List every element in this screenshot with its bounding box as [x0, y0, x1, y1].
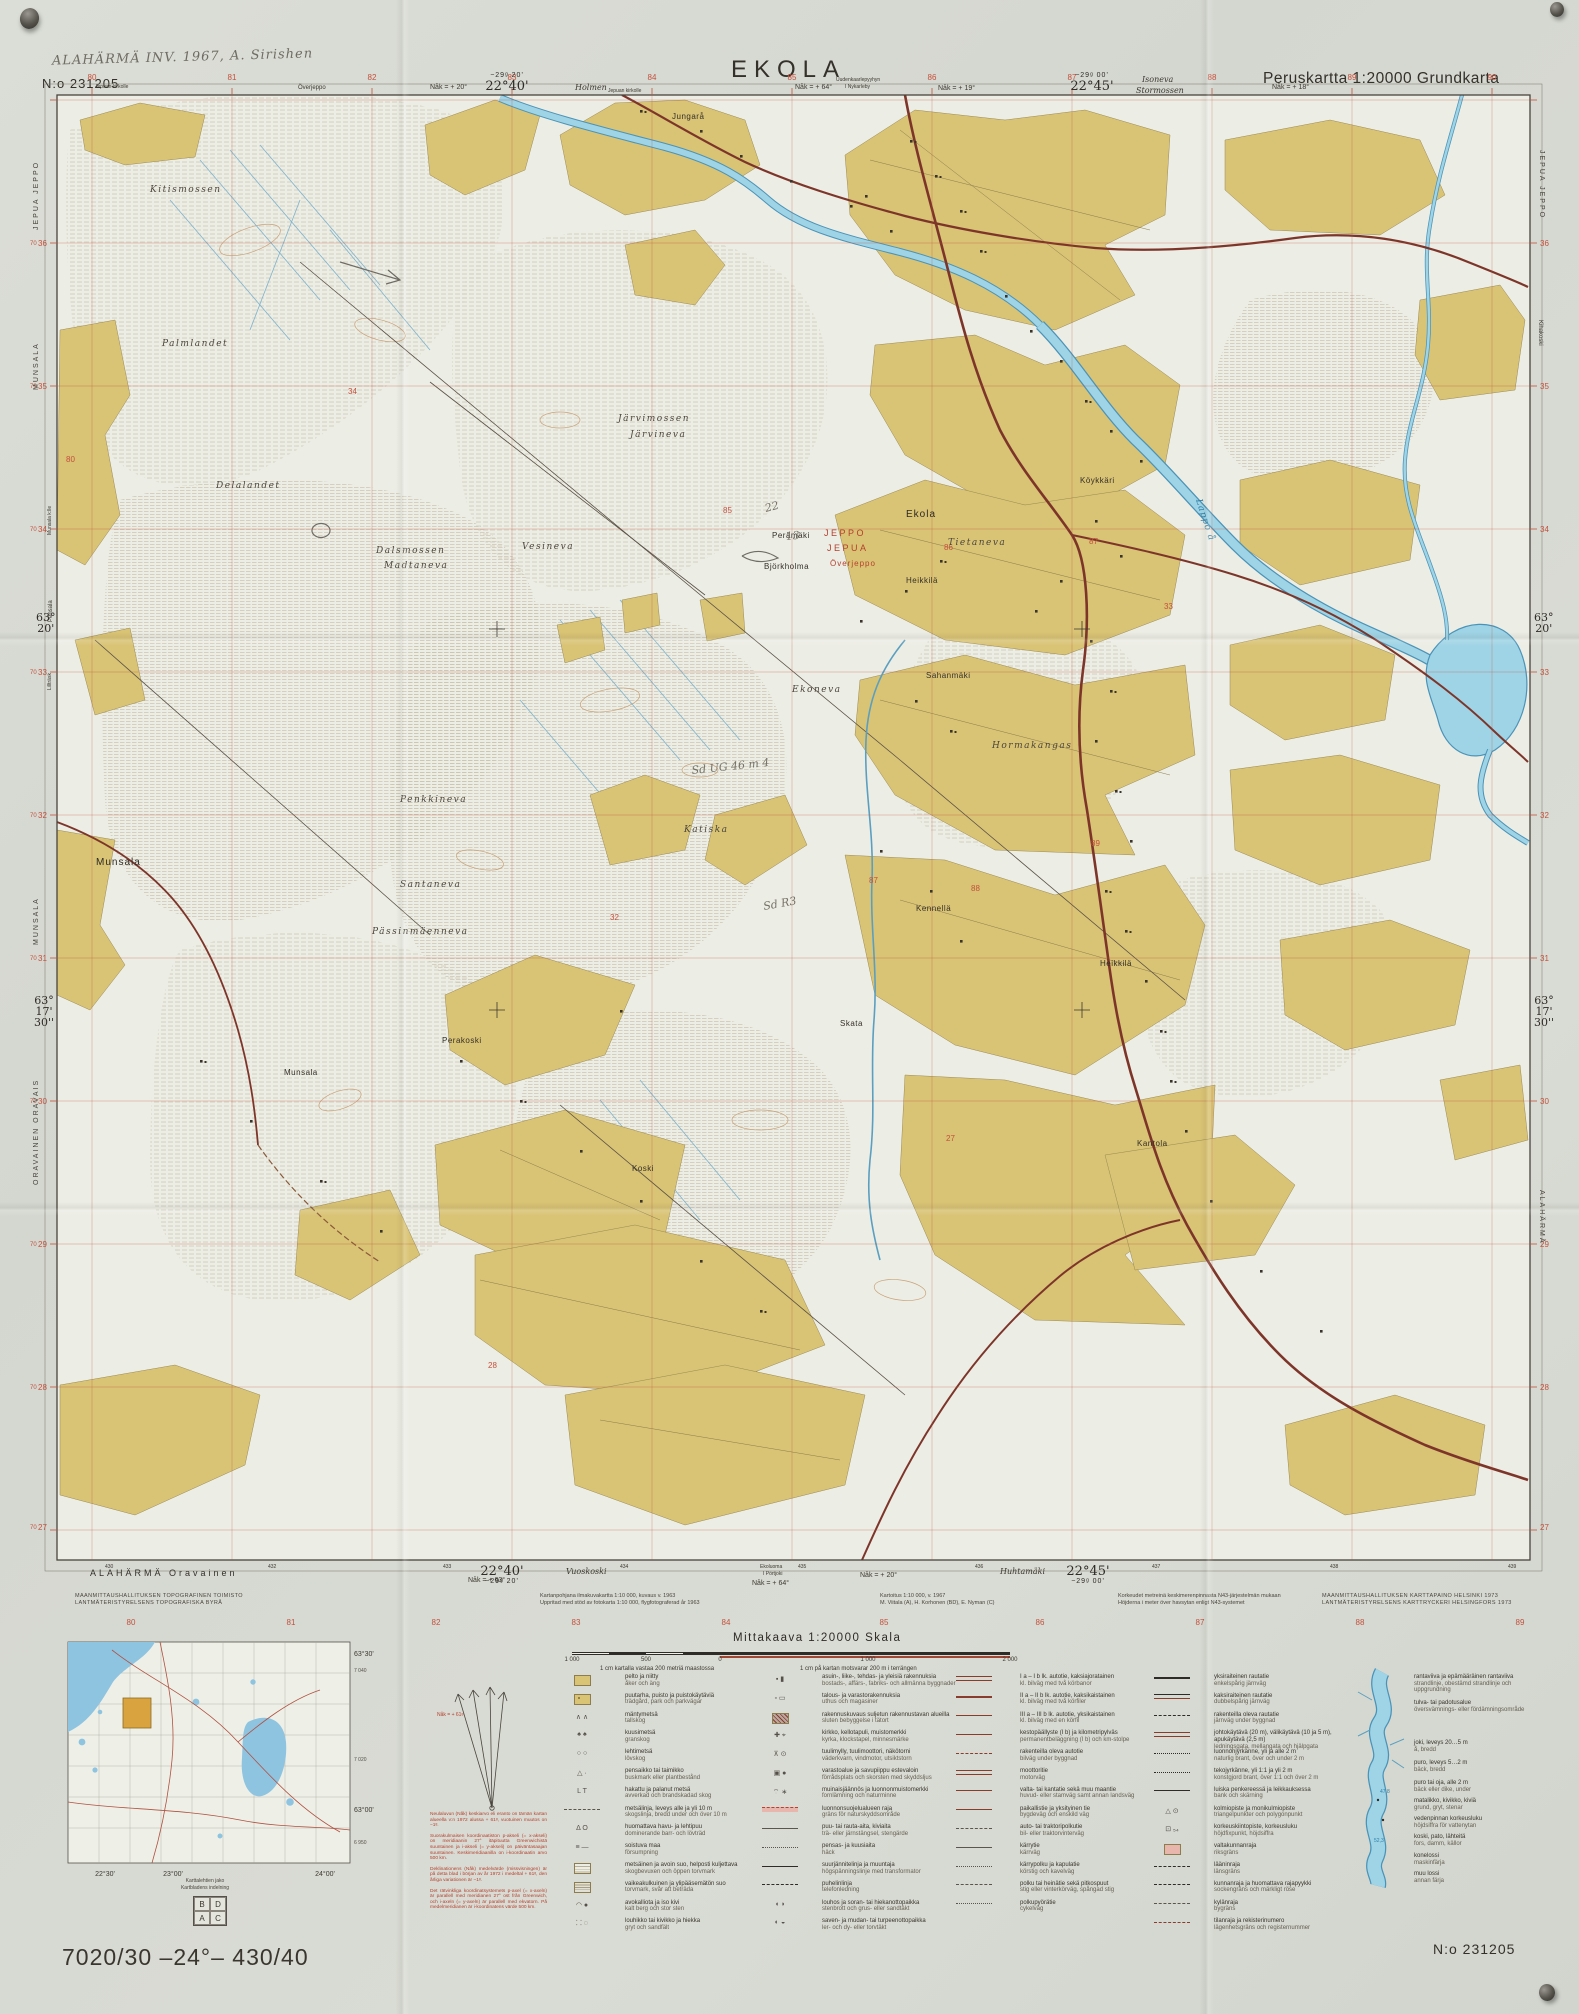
margin-label: Jepuan kirkolle: [95, 84, 128, 90]
margin-label: Isoneva: [1142, 75, 1173, 84]
map-place-label: Dalsmossen: [375, 546, 445, 556]
svg-text:70: 70: [30, 956, 37, 962]
svg-text:80: 80: [88, 73, 97, 82]
legend-water-item: rantaviiva ja epämääräinen rantaviivastr…: [1414, 1674, 1546, 1694]
legend-terrain-item: soistuva maaförsumpning: [625, 1843, 763, 1856]
map-place-label: 13: [785, 529, 800, 543]
sheet-code: 7020/30 –24°– 430/40: [62, 1944, 309, 1971]
svg-text:89: 89: [1348, 73, 1357, 82]
quadrant-a: A: [194, 1911, 210, 1925]
svg-text:70: 70: [30, 1385, 37, 1391]
svg-text:89: 89: [1516, 1618, 1525, 1627]
legend-roads-item: polkupyörätiecykelväg: [1020, 1900, 1170, 1913]
legend-boundaries-symbol: [1150, 1901, 1194, 1908]
legend-boundaries-symbol: [1150, 1882, 1194, 1889]
map-place-label: Pässinmäenneva: [371, 927, 469, 937]
svg-text:80: 80: [127, 1618, 136, 1627]
svg-text:31: 31: [38, 954, 47, 963]
legend-water-illustration: 47,8 52,3: [1358, 1672, 1404, 1886]
latitude-label: 63°20': [36, 612, 56, 634]
map-place-label: Munsala: [96, 857, 141, 868]
legend-buildings-item: puhelinlinjatelefonledning: [822, 1881, 960, 1894]
index-map: 22°30'23°00'24°00'63°30'63°00'7 0407 020…: [68, 1642, 374, 1878]
svg-text:32: 32: [1540, 811, 1549, 820]
legend-roads-symbol: [952, 1769, 996, 1776]
svg-text:29: 29: [38, 1240, 47, 1249]
legend-water-item: vedenpinnan korkeuslukuhöjdsiffra för va…: [1414, 1816, 1546, 1829]
margin-label: ALAHÄRMÄ Oravainen: [90, 1568, 238, 1578]
legend-buildings-item: tuulimylly, tuulimoottori, näkötorniväde…: [822, 1749, 960, 1762]
svg-text:63°30': 63°30': [354, 1650, 374, 1658]
svg-text:33: 33: [1540, 668, 1549, 677]
legend-roads-symbol: [952, 1731, 996, 1738]
legend-terrain-symbol: Δ O: [560, 1825, 604, 1832]
legend-terrain-item: metsäinen ja avoin suo, helposti kuljett…: [625, 1862, 763, 1875]
map-place-label: Palmlandet: [161, 339, 228, 349]
legend-terrain-item: mäntymetsätallskog: [625, 1712, 763, 1725]
map-place-label: Madtaneva: [383, 561, 448, 571]
map-place-label: JEPUA: [827, 543, 869, 553]
legend-buildings-symbol: ⊼ ⊙: [758, 1750, 802, 1758]
legend-terrain-item: puutarha, puisto ja puistokäytäviäträdgå…: [625, 1693, 763, 1706]
legend-buildings-symbol: [758, 1807, 802, 1814]
credit-block: Korkeudet metreinä keskimerenpinnasta N4…: [1118, 1593, 1281, 1607]
margin-label: Överjeppo: [298, 85, 326, 91]
quadrant-c: C: [210, 1911, 226, 1925]
legend-buildings-symbol: ▫ ▭: [758, 1694, 802, 1702]
legend-boundaries-item: kylänrajabygräns: [1214, 1900, 1336, 1913]
legend-buildings-item: talous- ja varastorakennuksiauthus och m…: [822, 1693, 960, 1706]
map-place-label: Köykkäri: [1080, 476, 1115, 485]
legend-terrain-symbol: ⸬ ◌: [560, 1919, 604, 1928]
svg-text:87: 87: [869, 876, 878, 885]
legend-water-item: konelossimaskinfärja: [1414, 1853, 1546, 1866]
legend-roads-symbol: [952, 1844, 996, 1851]
legend-boundaries-item: kolmiopiste ja monikulmiopistetriangelpu…: [1214, 1806, 1336, 1819]
map-place-label: Jungarå: [672, 112, 704, 121]
legend-boundaries-symbol: [1150, 1750, 1194, 1757]
svg-text:32: 32: [38, 811, 47, 820]
svg-text:439: 439: [1508, 1564, 1517, 1570]
legend-buildings-symbol: [758, 1882, 802, 1889]
margin-label: MUNSALA: [33, 342, 40, 390]
margin-label: Lillträsk: [47, 673, 53, 690]
svg-text:27: 27: [1540, 1523, 1549, 1532]
legend-boundaries-item: johtokäytävä (20 m), välikäytävä (10 ja …: [1214, 1730, 1336, 1750]
quadrant-diagram: B D A C: [193, 1896, 227, 1926]
legend-terrain-symbol: ◠ ●: [560, 1901, 604, 1909]
coordinate-label: 22°45'−29ᵍ 00': [1058, 1565, 1118, 1586]
margin-label: Nåk = + 64°: [752, 1580, 789, 1587]
legend-terrain-item: pensaikko tai taimikkobuskmark eller pla…: [625, 1768, 763, 1781]
legend-roads-item: kärrypolku ja kapulatiekörstig och kavel…: [1020, 1862, 1170, 1875]
legend-boundaries-item: luonnonjyrkänne, yli ja alle 2 mnaturlig…: [1214, 1749, 1336, 1762]
svg-text:432: 432: [268, 1564, 277, 1570]
legend-boundaries-item: kaksiraiteinen rautatiedubbelspårig järn…: [1214, 1693, 1336, 1706]
svg-text:33: 33: [1164, 602, 1173, 611]
svg-text:32: 32: [610, 913, 619, 922]
map-place-label: Sahanmäki: [926, 671, 971, 680]
map-sheet-paper: ALAHÄRMÄ INV. 1967, A. Sirishen N:o 2312…: [0, 0, 1579, 2014]
sheet-number-bottom: N:o 231205: [1433, 1941, 1515, 1957]
margin-label: Munsala k:lle: [47, 506, 53, 535]
legend-buildings-symbol: ✚ ⌖: [758, 1731, 802, 1740]
svg-text:85: 85: [788, 73, 797, 82]
credit-block: Kartoitus 1:10 000, v. 1967M. Viitala (A…: [880, 1593, 995, 1607]
legend-boundaries-item: tekojyrkänne, yli 1:1 ja yli 2 mkonstgjo…: [1214, 1768, 1336, 1781]
svg-text:23°00': 23°00': [163, 1870, 183, 1878]
legend-terrain-symbol: ≡ —: [560, 1844, 604, 1851]
margin-label: JEPUA JEPPO: [33, 161, 40, 230]
latitude-label: 63°20': [1534, 612, 1554, 634]
svg-text:88: 88: [1208, 73, 1217, 82]
svg-text:434: 434: [620, 1564, 629, 1570]
legend-roads-item: rakenteilla oleva autotiebilväg under by…: [1020, 1749, 1170, 1762]
scale-heading: Mittakaava 1:20000 Skala: [733, 1632, 901, 1644]
legend-buildings-symbol: [758, 1863, 802, 1870]
margin-label: ALAHÄRMÄ: [1538, 1190, 1545, 1245]
legend-buildings-symbol: [758, 1844, 802, 1851]
margin-label: Holmen: [575, 83, 607, 92]
margin-label: I Nykarleby: [845, 84, 870, 90]
svg-text:89: 89: [1091, 839, 1100, 848]
legend-terrain-symbol: △ ·: [560, 1769, 604, 1777]
legend-roads-item: kestopäällyste (I b) ja kilometripylväsp…: [1020, 1730, 1170, 1743]
map-place-label: Vesineva: [522, 542, 574, 552]
legend-boundaries-symbol: [1150, 1694, 1194, 1701]
latitude-label: 63°17'30'': [34, 995, 54, 1028]
legend-boundaries-item: korkeuskiintopiste, korkeuslukuhöjdfixpu…: [1214, 1824, 1336, 1837]
svg-text:Nåk = + 61ᵍ: Nåk = + 61ᵍ: [437, 1711, 463, 1718]
legend-roads-symbol: [952, 1788, 996, 1795]
svg-text:47,8: 47,8: [1380, 1789, 1390, 1795]
legend-roads-item: paikallistie ja yksityinen tiebygdeväg o…: [1020, 1806, 1170, 1819]
legend-boundaries-symbol: [1150, 1731, 1194, 1738]
map-place-label: Björkholma: [764, 562, 809, 571]
credit-block: Kartanpohjana ilmakuvakartta 1:10 000, k…: [540, 1593, 700, 1607]
margin-label: Huhtamäki: [1000, 1567, 1045, 1576]
margin-label: Stormossen: [1136, 86, 1184, 95]
legend-terrain-symbol: [560, 1675, 604, 1686]
legend-boundaries-symbol: [1150, 1788, 1194, 1795]
legend-buildings-symbol: ◖ ◗: [758, 1901, 802, 1908]
map-place-label: Katiska: [683, 825, 729, 835]
map-place-label: Järvimossen: [616, 414, 690, 424]
svg-text:90: 90: [1488, 73, 1497, 82]
svg-text:28: 28: [488, 1361, 497, 1370]
scale-note-sv: 1 cm på kartan motsvarar 200 m i terräng…: [800, 1666, 917, 1672]
svg-text:82: 82: [432, 1618, 441, 1627]
legend-roads-item: III a – III b lk. autotie, yksikaistaine…: [1020, 1712, 1170, 1725]
index-map-caption-sv: Kartbladens indelning: [125, 1885, 285, 1891]
legend-terrain-item: avokalliota ja iso kivikalt berg och sto…: [625, 1900, 763, 1913]
svg-text:7 020: 7 020: [354, 1757, 367, 1763]
legend-roads-symbol: [952, 1825, 996, 1832]
legend-boundaries-symbol: △ ⊙: [1150, 1807, 1194, 1815]
svg-text:22°30': 22°30': [95, 1870, 115, 1878]
legend-roads-item: kärrytiekärrväg: [1020, 1843, 1170, 1856]
legend-roads-symbol: [952, 1863, 996, 1870]
legend-boundaries-item: luiska penkereessä ja leikkauksessabank …: [1214, 1787, 1336, 1800]
declination-diagram: Nåk = + 61ᵍ: [437, 1687, 507, 1810]
margin-label: Uudenkaarlepyyhyn: [836, 77, 880, 83]
legend-roads-item: II a – II b lk. autotie, kaksikaistainen…: [1020, 1693, 1170, 1706]
legend-water-item: muu lossiannan färja: [1414, 1871, 1546, 1884]
scale-tick: 500: [641, 1657, 651, 1663]
svg-text:83: 83: [572, 1618, 581, 1627]
legend-buildings-item: suurjännitelinja ja muuntajahögspännings…: [822, 1862, 960, 1875]
legend-boundaries-symbol: [1150, 1919, 1194, 1926]
quadrant-b: B: [194, 1897, 210, 1911]
map-place-label: Kantola: [1137, 1139, 1168, 1148]
svg-text:438: 438: [1330, 1564, 1339, 1570]
svg-text:34: 34: [1540, 525, 1549, 534]
legend-buildings-item: muinaisjäännös ja luonnonmuistomerkkifor…: [822, 1787, 960, 1800]
scale-tick: 0: [718, 1657, 721, 1663]
legend-roads-item: moottoritiemotorväg: [1020, 1768, 1170, 1781]
legend-buildings-symbol: [758, 1713, 802, 1724]
legend-boundaries-symbol: [1150, 1675, 1194, 1682]
legend-roads-symbol: [952, 1901, 996, 1908]
legend-roads-item: auto- tai traktoripolkutiebil- eller tra…: [1020, 1824, 1170, 1837]
legend-buildings-symbol: [758, 1825, 802, 1832]
svg-text:70: 70: [30, 527, 37, 533]
scale-bar: [572, 1652, 1010, 1655]
declination-notes: Neulaluvun (Nåk) keskiarvo eli eranto on…: [430, 1812, 547, 1916]
legend-buildings-symbol: ▣ ●: [758, 1769, 802, 1777]
legend-boundaries-symbol: [1150, 1844, 1194, 1855]
svg-text:24°00': 24°00': [315, 1870, 335, 1878]
coordinate-label: −29ᵍ 00'22°45': [1062, 72, 1122, 93]
margin-label: Nåk = + 20°: [430, 84, 467, 91]
legend-water-item: matalikko, kivikko, kiviägrund, gryt, st…: [1414, 1798, 1546, 1811]
map-place-label: Skata: [840, 1019, 863, 1028]
legend-roads-item: I a – I b lk. autotie, kaksiajoratainenk…: [1020, 1674, 1170, 1687]
legend-buildings-item: pensas- ja kuusiaitahäck: [822, 1843, 960, 1856]
legend-buildings-item: rakennuskuvaus suljetun rakennustavan al…: [822, 1712, 960, 1725]
legend-terrain-symbol: ♠ ♠: [560, 1731, 604, 1738]
scale-note-fi: 1 cm kartalla vastaa 200 metriä maastoss…: [600, 1666, 714, 1672]
margin-label: MUNSALA: [33, 897, 40, 945]
quadrant-d: D: [210, 1897, 226, 1911]
legend-terrain-item: vaikeakulkuinen ja ylipääsemätön suotorv…: [625, 1881, 763, 1894]
map-place-label: Tietaneva: [948, 538, 1006, 548]
svg-text:35: 35: [1540, 382, 1549, 391]
legend-buildings-symbol: ▪ ▮: [758, 1675, 802, 1683]
map-place-label: Penkkineva: [399, 795, 467, 805]
svg-text:63°00': 63°00': [354, 1806, 374, 1814]
legend-roads-item: polku tai heinätie sekä pitkospuutstig e…: [1020, 1881, 1170, 1894]
svg-text:85: 85: [880, 1618, 889, 1627]
svg-text:437: 437: [1152, 1564, 1161, 1570]
legend-boundaries-item: valtakunnanrajariksgräns: [1214, 1843, 1336, 1856]
legend-water-item: koski, pato, lähteitäfors, damm, källor: [1414, 1834, 1546, 1847]
margin-label: Jepuan kirkolle: [608, 88, 641, 94]
legend-boundaries-item: tilanraja ja rekisterinumerolägenhetsgrä…: [1214, 1918, 1336, 1931]
margin-label: JEPUA JEPPO: [1538, 150, 1545, 219]
svg-text:28: 28: [1540, 1383, 1549, 1392]
legend-roads-item: valta- tai kantatie sekä muu maantiehuvu…: [1020, 1787, 1170, 1800]
coordinate-label: 22°40'−29ᵍ 20': [472, 1565, 532, 1586]
svg-text:81: 81: [228, 73, 237, 82]
legend-water-item: joki, leveys 20…5 må, bredd: [1414, 1740, 1546, 1753]
legend-roads-symbol: [952, 1713, 996, 1720]
map-place-label: Överjeppo: [830, 559, 876, 568]
svg-text:52,3: 52,3: [1374, 1838, 1384, 1844]
legend-buildings-symbol: ⌔ ∗: [758, 1788, 802, 1797]
legend-terrain-item: hakattu ja palanut metsäavverkad och bra…: [625, 1787, 763, 1800]
legend-buildings-item: kirkko, kellotapuli, muistomerkkikyrka, …: [822, 1730, 960, 1743]
map-place-label: Kennellä: [916, 904, 951, 913]
svg-text:27: 27: [38, 1523, 47, 1532]
legend-roads-symbol: [952, 1675, 996, 1682]
legend-terrain-symbol: ○ ○: [560, 1750, 604, 1757]
svg-text:70: 70: [30, 241, 37, 247]
svg-text:88: 88: [971, 884, 980, 893]
legend-buildings-item: louhos ja soran- tai hiekanottopaikkaste…: [822, 1900, 960, 1913]
map-place-label: Santaneva: [400, 880, 461, 890]
svg-text:70: 70: [30, 1525, 37, 1531]
legend-boundaries-symbol: [1150, 1863, 1194, 1870]
map-place-label: Ekoneva: [791, 685, 842, 695]
legend-terrain-item: lehtimetsälövskog: [625, 1749, 763, 1762]
map-place-label: Kitismossen: [149, 185, 222, 195]
margin-label: Vuoskoski: [566, 1567, 607, 1576]
latitude-label: 63°17'30'': [1534, 995, 1554, 1028]
legend-buildings-item: luonnonsuojelualueen rajagräns för natur…: [822, 1806, 960, 1819]
svg-text:86: 86: [928, 73, 937, 82]
legend-boundaries-item: yksiraiteinen rautatieenkelspårig järnvä…: [1214, 1674, 1336, 1687]
svg-text:87: 87: [1196, 1618, 1205, 1627]
scale-tick: 1 000: [564, 1657, 579, 1663]
margin-label: ORAVAINEN ORAVAIS: [33, 1079, 40, 1185]
legend-terrain-item: kuusimetsägranskog: [625, 1730, 763, 1743]
credit-block: MAANMITTAUSHALLITUKSEN TOPOGRAFINEN TOIM…: [75, 1593, 243, 1607]
scale-tick: 1 000: [860, 1657, 875, 1663]
svg-text:87: 87: [1089, 537, 1098, 546]
svg-text:27: 27: [946, 1134, 955, 1143]
legend-terrain-symbol: [560, 1807, 604, 1814]
map-place-label: Munsala: [284, 1068, 318, 1077]
legend-buildings-item: puu- tai rauta-aita, kiviaitaträ- eller …: [822, 1824, 960, 1837]
svg-text:34: 34: [348, 387, 357, 396]
legend-terrain-symbol: [560, 1694, 604, 1705]
svg-text:30: 30: [1540, 1097, 1549, 1106]
svg-text:85: 85: [723, 506, 732, 515]
margin-label: Nåk = + 18°: [1272, 84, 1309, 91]
svg-text:435: 435: [798, 1564, 807, 1570]
legend-water-item: puro tai oja, alle 2 mbäck eller dike, u…: [1414, 1780, 1546, 1793]
legend-terrain-item: louhikko tai kivikko ja hiekkagryt och s…: [625, 1918, 763, 1931]
margin-label: Nåk = + 19°: [938, 85, 975, 92]
margin-label: Kihakoski: [1537, 320, 1543, 346]
svg-text:70: 70: [30, 813, 37, 819]
legend-buildings-item: saven- ja mudan- tai turpeenottopaikkale…: [822, 1918, 960, 1931]
margin-label: Ekoluoma: [760, 1564, 782, 1570]
svg-text:6 950: 6 950: [354, 1840, 367, 1846]
legend-roads-symbol: [952, 1882, 996, 1889]
coordinate-label: −29ᵍ 20'22°40': [477, 72, 537, 93]
legend-boundaries-symbol: [1150, 1713, 1194, 1720]
map-place-label: Delalandet: [215, 481, 281, 491]
legend-boundaries-item: rakenteilla oleva rautatiejärnväg under …: [1214, 1712, 1336, 1725]
svg-text:84: 84: [648, 73, 657, 82]
legend-buildings-item: asuin-, liike-, tehdas- ja yleisiä raken…: [822, 1674, 960, 1687]
map-place-label: JEPPO: [824, 528, 866, 538]
credit-block: MAANMITTAUSHALLITUKSEN KARTTAPAINO HELSI…: [1322, 1593, 1512, 1607]
map-place-label: Perakoski: [442, 1036, 482, 1045]
map-place-label: Heikkilä: [1100, 959, 1132, 968]
legend-boundaries-item: kunnanraja ja huomattava rajapyykkisocke…: [1214, 1881, 1336, 1894]
svg-text:433: 433: [443, 1564, 452, 1570]
legend-boundaries-symbol: ⊡ ₅₄: [1150, 1825, 1194, 1833]
map-place-label: Heikkilä: [906, 576, 938, 585]
svg-text:88: 88: [1356, 1618, 1365, 1627]
legend-roads-symbol: [952, 1694, 996, 1701]
svg-text:36: 36: [1540, 239, 1549, 248]
svg-text:84: 84: [722, 1618, 731, 1627]
legend-roads-symbol: [952, 1750, 996, 1757]
legend-buildings-item: varastoalue ja savupiippu estevaloinförr…: [822, 1768, 960, 1781]
svg-text:436: 436: [975, 1564, 984, 1570]
svg-text:81: 81: [287, 1618, 296, 1627]
index-map-caption-fi: Karttalehtien jako: [125, 1878, 285, 1884]
push-pin: [1550, 2, 1564, 17]
legend-water-item: puro, leveys 5…2 mbäck, bredd: [1414, 1760, 1546, 1773]
svg-text:82: 82: [368, 73, 377, 82]
legend-buildings-symbol: ◐ ◒: [758, 1919, 802, 1926]
legend-terrain-item: pelto ja niittyåker och äng: [625, 1674, 763, 1687]
svg-text:28: 28: [38, 1383, 47, 1392]
map-place-label: Koski: [632, 1164, 654, 1173]
svg-text:36: 36: [38, 239, 47, 248]
legend-boundaries-symbol: [1150, 1769, 1194, 1776]
map-place-label: Ekola: [906, 509, 936, 520]
svg-text:70: 70: [30, 670, 37, 676]
legend-water-item: tulva- tai padotusalueöversvämnings- ell…: [1414, 1700, 1546, 1713]
legend-terrain-symbol: [560, 1882, 604, 1893]
svg-text:7 040: 7 040: [354, 1668, 367, 1674]
map-place-label: Järvineva: [628, 430, 686, 440]
svg-text:31: 31: [1540, 954, 1549, 963]
legend-terrain-item: metsälinja, leveys alle ja yli 10 mskogs…: [625, 1806, 763, 1819]
legend-roads-symbol: [952, 1807, 996, 1814]
svg-text:70: 70: [30, 1242, 37, 1248]
legend-terrain-item: huomattava havu- ja lehtipuudominerande …: [625, 1824, 763, 1837]
legend-terrain-symbol: [560, 1863, 604, 1874]
scale-tick: 2 000: [1002, 1657, 1017, 1663]
svg-text:80: 80: [66, 455, 75, 464]
svg-text:86: 86: [1036, 1618, 1045, 1627]
margin-label: I Pörtjoki: [763, 1571, 782, 1577]
legend-boundaries-item: lääninrajalänsgräns: [1214, 1862, 1336, 1875]
legend-terrain-symbol: L T: [560, 1788, 604, 1795]
map-place-label: Hormakangas: [991, 741, 1072, 751]
margin-label: Nåk = + 64°: [795, 84, 832, 91]
margin-label: Nåk = + 20°: [860, 1572, 897, 1579]
legend-terrain-symbol: ∧ ∧: [560, 1713, 604, 1721]
